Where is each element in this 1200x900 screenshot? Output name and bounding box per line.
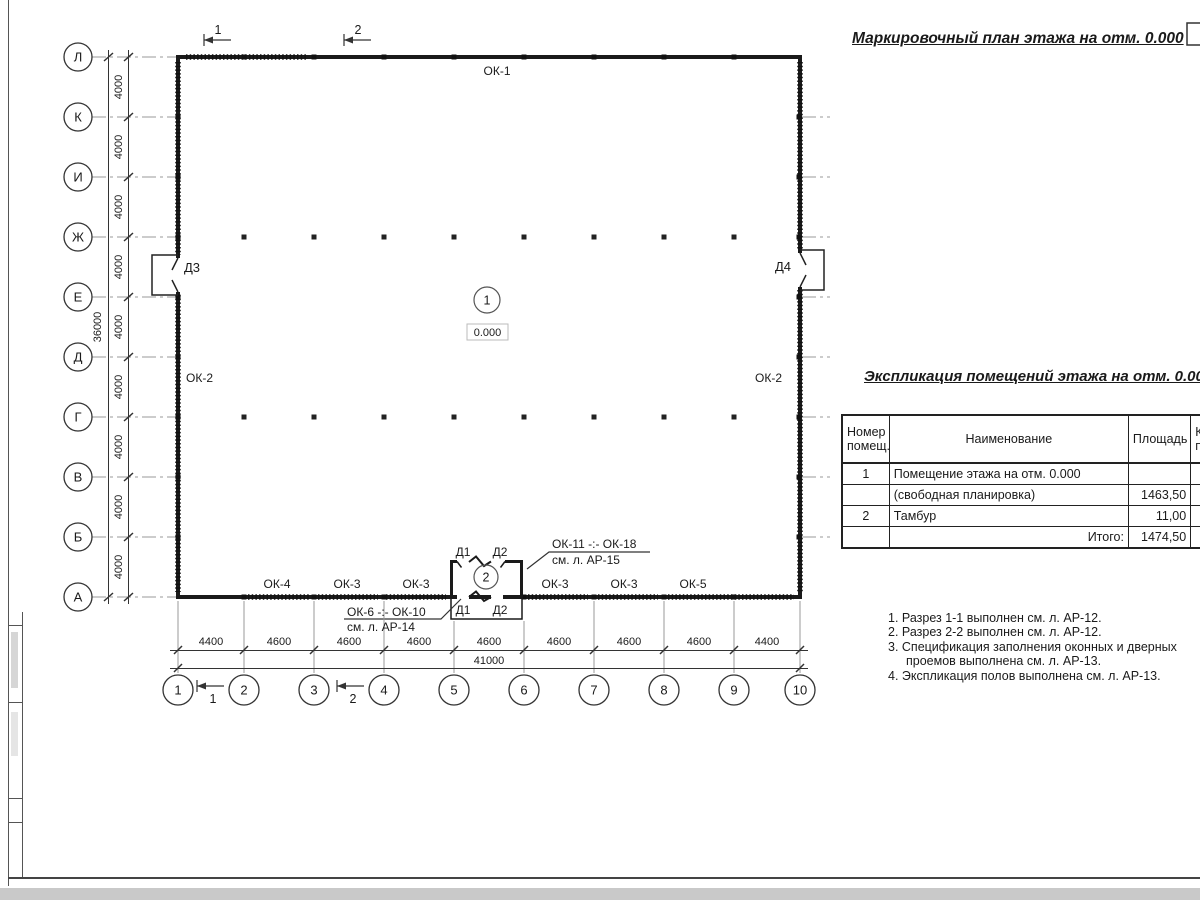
cell-num <box>842 485 889 506</box>
room-schedule-table: Номер помещ. Наименование Площадь Ка по … <box>841 414 1200 549</box>
axis-label: Д <box>74 350 83 365</box>
dim-4000: 4000 <box>113 75 125 99</box>
axis-label: Г <box>74 410 81 425</box>
table-row-total: Итого: 1474,50 <box>842 527 1200 549</box>
window-label-ok2-left: ОК-2 <box>186 371 213 385</box>
dim-4000: 4000 <box>113 435 125 459</box>
door-label-d4: Д4 <box>775 259 791 274</box>
cell-name: Помещение этажа на отм. 0.000 <box>889 463 1128 485</box>
cell-area: 11,00 <box>1128 506 1190 527</box>
cell-cut <box>1191 485 1200 506</box>
axis-label: 1 <box>174 683 181 698</box>
axis-label: Ж <box>72 230 84 245</box>
section-markers <box>197 34 371 692</box>
col-axis-labels: 1 2 3 4 5 6 7 8 9 10 <box>174 683 807 698</box>
window-label-ok1: ОК-1 <box>484 64 511 78</box>
room1-elevation: 0.000 <box>474 327 502 339</box>
dim-total: 41000 <box>474 655 505 667</box>
header-name: Наименование <box>889 415 1128 463</box>
dim-value: 4600 <box>477 636 501 648</box>
door-label-d1: Д1 <box>456 603 471 617</box>
plan-labels: ОК-1 ОК-2 ОК-2 ОК-4 ОК-3 ОК-3 ОК-3 ОК-3 … <box>184 64 791 634</box>
header-text: помещ. <box>847 439 889 453</box>
header-room-number: Номер помещ. <box>842 415 889 463</box>
room1-number: 1 <box>484 294 491 308</box>
door-label-d3: Д3 <box>184 260 200 275</box>
axis-label: 9 <box>730 683 737 698</box>
col-axis-bubbles <box>163 675 815 705</box>
dim-value: 4600 <box>687 636 711 648</box>
header-text: Номер <box>847 425 885 439</box>
header-category-cut: Ка по <box>1191 415 1200 463</box>
cell-area: 1463,50 <box>1128 485 1190 506</box>
section-label: 2 <box>355 23 362 37</box>
section-label: 1 <box>210 692 217 706</box>
cell-cut <box>1191 527 1200 549</box>
cell-total-area: 1474,50 <box>1128 527 1190 549</box>
axis-label: 7 <box>590 683 597 698</box>
window-label: ОК-3 <box>334 577 361 591</box>
leader-text: ОК-6 -:- ОК-10 <box>347 605 426 619</box>
leader-text: ОК-11 -:- ОК-18 <box>552 537 637 551</box>
axis-label: Л <box>74 50 83 65</box>
cell-num: 1 <box>842 463 889 485</box>
note-item: 3. Спецификация заполнения оконных и две… <box>888 640 1188 669</box>
axis-label: 2 <box>240 683 247 698</box>
axis-label: 3 <box>310 683 317 698</box>
header-text: по <box>1195 439 1200 453</box>
dim-value: 4600 <box>617 636 641 648</box>
cell-cut <box>1191 506 1200 527</box>
door-d4 <box>800 250 824 290</box>
leader-text: см. л. АР-15 <box>552 553 620 567</box>
cell-name: (свободная планировка) <box>889 485 1128 506</box>
axis-label: В <box>74 470 83 485</box>
dim-value: 4400 <box>199 636 223 648</box>
dim-4000: 4000 <box>113 495 125 519</box>
dim-4000: 4000 <box>113 375 125 399</box>
window-label: ОК-3 <box>611 577 638 591</box>
door-label-d2: Д2 <box>493 545 508 559</box>
window-label: ОК-3 <box>542 577 569 591</box>
cell-num: 2 <box>842 506 889 527</box>
cell-num <box>842 527 889 549</box>
section-label: 1 <box>215 23 222 37</box>
note-item: 1. Разрез 1-1 выполнен см. л. АР-12. <box>888 611 1188 625</box>
dim-value: 4600 <box>337 636 361 648</box>
section-marker-labels: 1 2 1 2 <box>210 23 362 706</box>
door-label-d1: Д1 <box>456 545 471 559</box>
table-header-row: Номер помещ. Наименование Площадь Ка по <box>842 415 1200 463</box>
table-row: 1 Помещение этажа на отм. 0.000 <box>842 463 1200 485</box>
window-label: ОК-5 <box>680 577 707 591</box>
cell-cut <box>1191 463 1200 485</box>
axis-label: 10 <box>793 683 807 698</box>
cell-name: Тамбур <box>889 506 1128 527</box>
window-label-ok2-right: ОК-2 <box>755 371 782 385</box>
drawing-sheet: 4000 4000 4000 4000 4000 4000 4000 4000 … <box>0 0 1200 900</box>
axis-label: К <box>74 110 82 125</box>
dim-value: 4600 <box>547 636 571 648</box>
axis-label: И <box>73 170 82 185</box>
cell-total-label: Итого: <box>889 527 1128 549</box>
note-item: 4. Экспликация полов выполнена см. л. АР… <box>888 669 1188 683</box>
axis-label: Б <box>74 530 83 545</box>
dim-4000: 4000 <box>113 255 125 279</box>
door-label-d2: Д2 <box>493 603 508 617</box>
revision-box-fragment <box>1187 23 1200 45</box>
door-d3 <box>152 255 178 295</box>
header-text: Ка <box>1195 425 1200 439</box>
dim-4000: 4000 <box>113 555 125 579</box>
dim-4000: 4000 <box>113 315 125 339</box>
axis-label: 6 <box>520 683 527 698</box>
drawing-title: Маркировочный план этажа на отм. 0.000 <box>852 30 1184 48</box>
window-label: ОК-4 <box>264 577 291 591</box>
axis-label: А <box>74 590 83 605</box>
row-axis-labels: Л К И Ж Е Д Г В Б А <box>72 50 84 605</box>
dim-4000: 4000 <box>113 195 125 219</box>
dim-4000: 4000 <box>113 135 125 159</box>
section-label: 2 <box>350 692 357 706</box>
axis-label: Е <box>74 290 83 305</box>
window-label: ОК-3 <box>403 577 430 591</box>
room2-number: 2 <box>483 571 490 585</box>
bottom-dimension-values: 4400 4600 4600 4600 4600 4600 4600 4600 … <box>199 636 779 667</box>
notes-block: 1. Разрез 1-1 выполнен см. л. АР-12. 2. … <box>888 611 1188 683</box>
axis-label: 5 <box>450 683 457 698</box>
dim-value: 4600 <box>407 636 431 648</box>
table-row: (свободная планировка) 1463,50 <box>842 485 1200 506</box>
header-area: Площадь <box>1128 415 1190 463</box>
table-row: 2 Тамбур 11,00 <box>842 506 1200 527</box>
spec-table-title: Экспликация помещений этажа на отм. 0.00… <box>864 368 1200 385</box>
row-grid-lines <box>92 57 830 597</box>
cell-area <box>1128 463 1190 485</box>
note-item: 2. Разрез 2-2 выполнен см. л. АР-12. <box>888 625 1188 639</box>
dim-value: 4400 <box>755 636 779 648</box>
dim-36000: 36000 <box>92 312 104 343</box>
axis-label: 8 <box>660 683 667 698</box>
row-axis-bubbles <box>64 43 92 611</box>
axis-label: 4 <box>380 683 387 698</box>
leader-text: см. л. АР-14 <box>347 620 415 634</box>
dim-value: 4600 <box>267 636 291 648</box>
